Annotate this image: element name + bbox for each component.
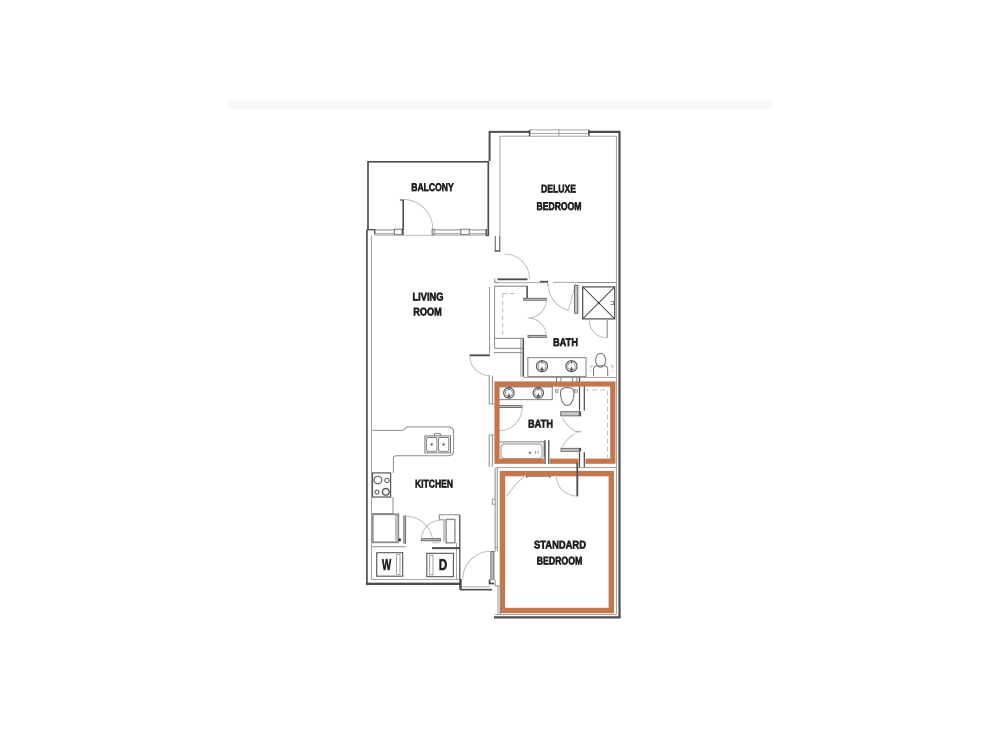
svg-text:D: D [439,557,448,574]
svg-text:W: W [382,557,391,574]
svg-text:BATH: BATH [528,418,553,430]
svg-text:LIVING: LIVING [413,292,444,304]
svg-text:ROOM: ROOM [413,307,442,319]
svg-text:BATH: BATH [553,337,578,349]
svg-text:BALCONY: BALCONY [411,182,454,194]
svg-text:BEDROOM: BEDROOM [537,201,582,213]
svg-text:DELUXE: DELUXE [541,184,576,196]
svg-text:KITCHEN: KITCHEN [415,478,453,490]
svg-text:STANDARD: STANDARD [534,539,586,551]
svg-text:BEDROOM: BEDROOM [537,556,583,568]
